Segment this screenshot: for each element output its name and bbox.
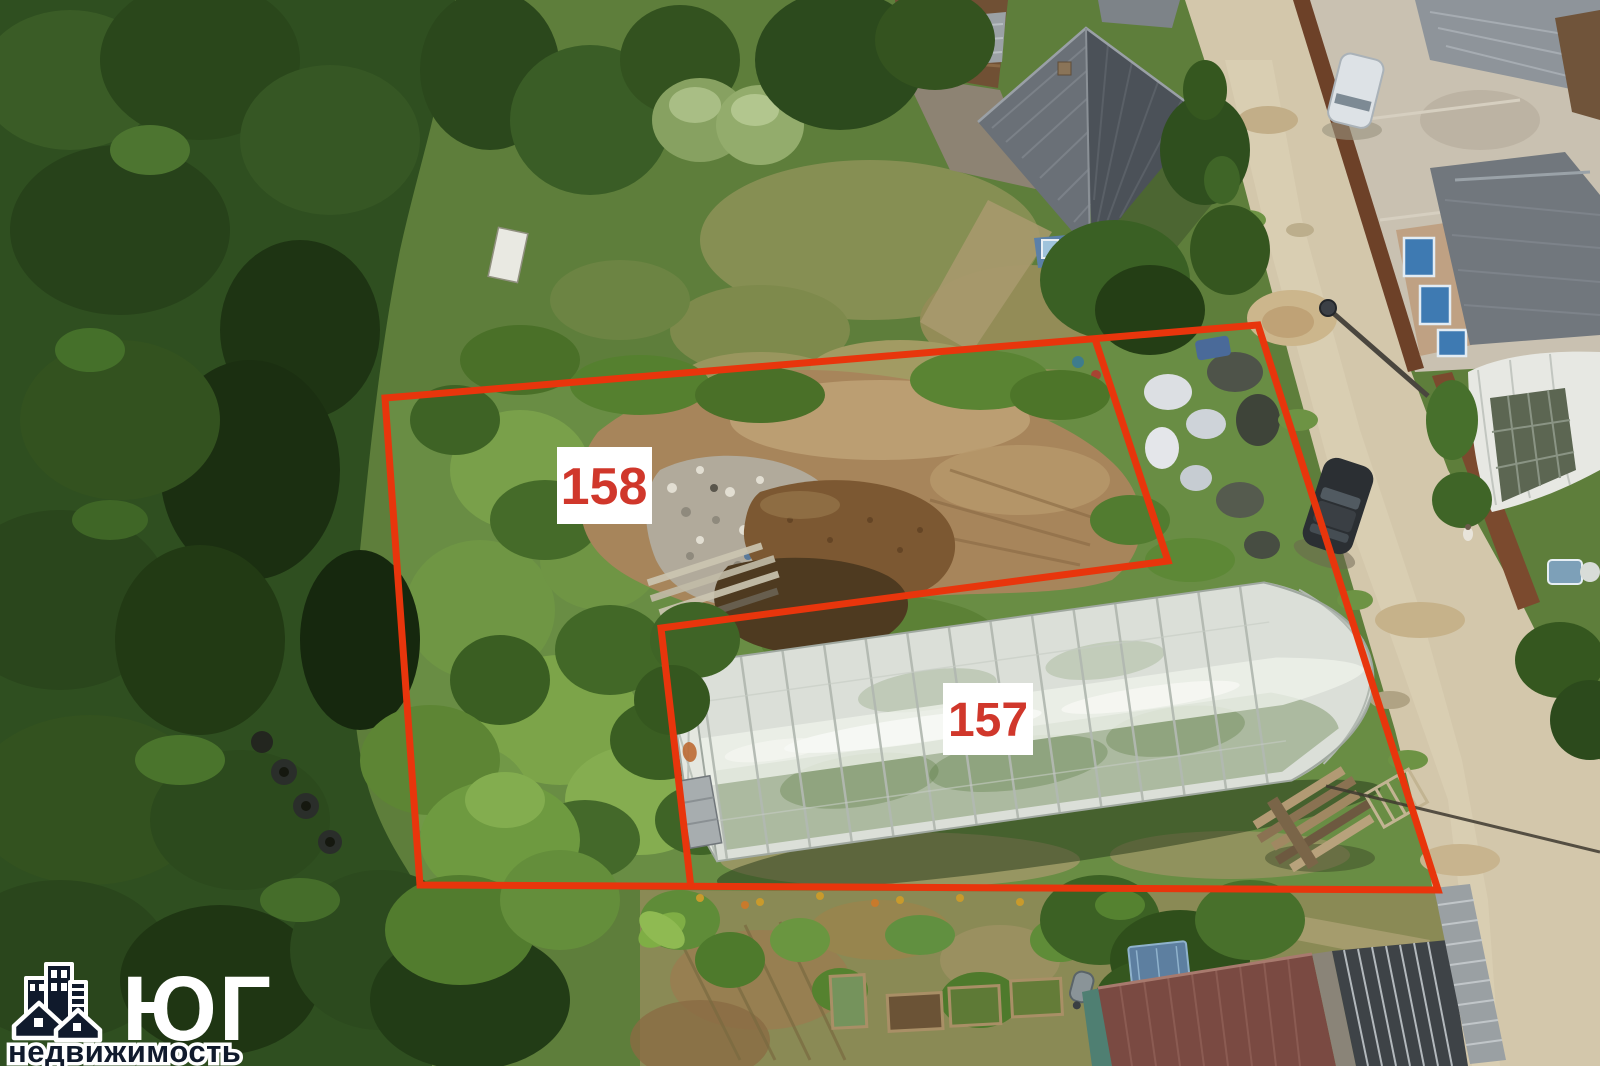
plot-boundary-outer	[385, 325, 1438, 890]
plot-label-157: 157	[943, 683, 1033, 755]
plot-boundaries	[385, 325, 1438, 890]
plot-boundary-divider	[661, 339, 1168, 888]
watermark-logo: ЮГ недвижимость	[8, 958, 273, 1066]
plot-label-157-text: 157	[948, 694, 1028, 747]
screenshot-root: 158 157	[0, 0, 1600, 1066]
buildings-and-houses-icon	[14, 964, 100, 1040]
brand-subtitle: недвижимость	[8, 1034, 241, 1066]
plot-label-158-text: 158	[561, 458, 648, 516]
plot-label-158: 158	[557, 447, 652, 524]
annotation-overlay: 158 157	[0, 0, 1600, 1066]
